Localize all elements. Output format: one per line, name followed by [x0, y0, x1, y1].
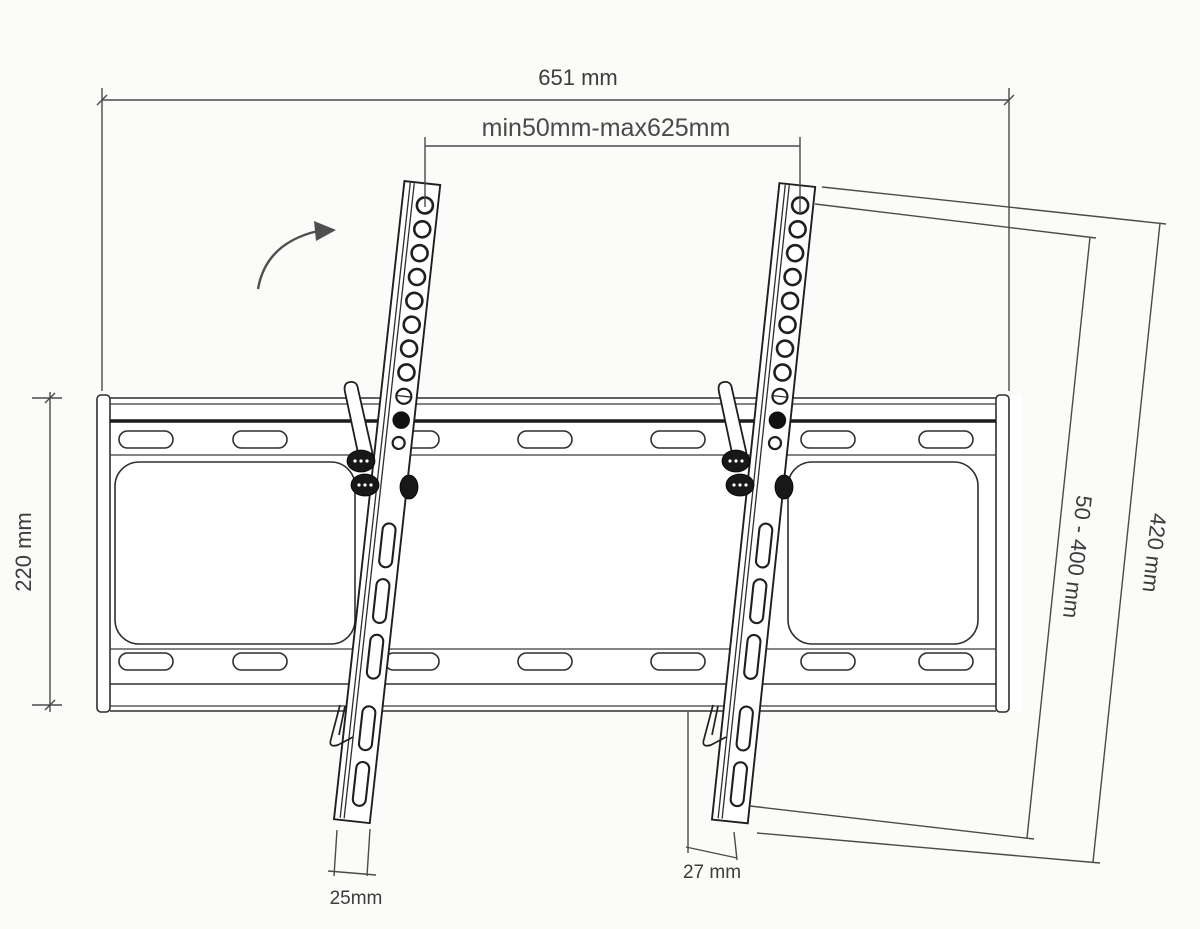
- bottom-slot-row: [119, 653, 973, 670]
- right-pivot-bolt: [775, 475, 793, 499]
- dim-rail-width: 25mm: [328, 829, 382, 909]
- wall-plate-left-cap: [97, 395, 110, 712]
- dim-rail-spacing-label: min50mm-max625mm: [482, 114, 731, 142]
- dim-rail-length-label: 420 mm: [1138, 512, 1172, 594]
- mounting-slot: [801, 653, 855, 670]
- mount-bracket-diagram: 651 mm min50mm-max625mm 220 mm 420 mm 50…: [0, 0, 1200, 929]
- mounting-slot: [518, 653, 572, 670]
- mounting-slot: [651, 653, 705, 670]
- dim-total-width-label: 651 mm: [538, 65, 617, 90]
- dim-rail-width-label: 25mm: [330, 888, 383, 909]
- dim-vesa-range-label: 50 - 400 mm: [1058, 494, 1097, 620]
- mounting-slot: [518, 431, 572, 448]
- mounting-slot: [801, 431, 855, 448]
- mounting-slot: [385, 653, 439, 670]
- diagram-canvas: 651 mm min50mm-max625mm 220 mm 420 mm 50…: [0, 0, 1200, 929]
- top-slot-row: [119, 431, 973, 448]
- pivot-bolt-hole: [769, 411, 787, 429]
- dim-plate-height: 220 mm: [11, 392, 62, 712]
- mounting-slot: [919, 653, 973, 670]
- mounting-slot: [119, 431, 173, 448]
- tilt-arrow-icon: [258, 221, 336, 289]
- dim-rail-spacing: min50mm-max625mm: [425, 114, 800, 215]
- pivot-bolt-hole: [392, 411, 410, 429]
- wall-plate-right-cap: [996, 395, 1009, 712]
- mounting-slot: [119, 653, 173, 670]
- dim-plate-height-label: 220 mm: [11, 512, 36, 591]
- mounting-slot: [233, 431, 287, 448]
- mounting-slot: [651, 431, 705, 448]
- mounting-slot: [233, 653, 287, 670]
- wall-plate: [97, 395, 1022, 712]
- left-pivot-bolt: [400, 475, 418, 499]
- mounting-slot: [919, 431, 973, 448]
- dim-rail-bottom-offset-label: 27 mm: [683, 862, 741, 883]
